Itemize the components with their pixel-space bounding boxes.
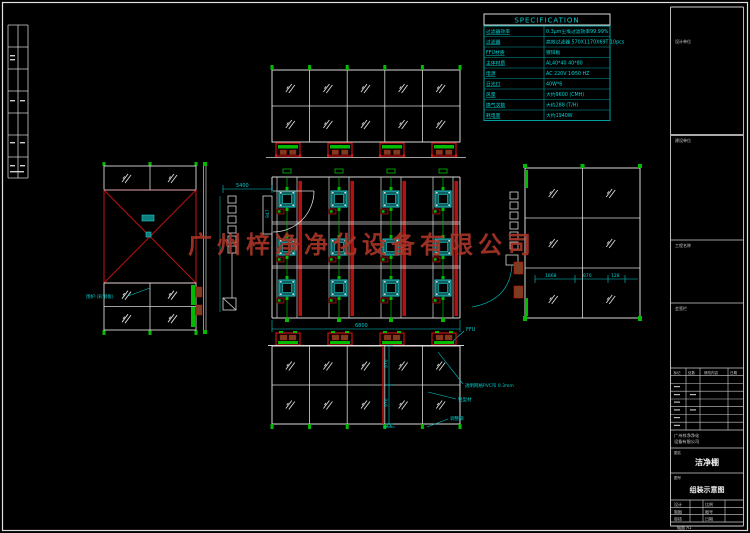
info-cell: 比例 [705, 501, 713, 507]
rev-header: 日期 [730, 370, 738, 375]
spec-row-value: 高效过滤器 570X1170X69T 10pcs [546, 39, 625, 46]
plan-dim-top: 5400 [236, 183, 249, 189]
sheet-size-note: 幅面 A1 [677, 524, 692, 530]
spec-row-value: 大约288 (T/H) [546, 102, 578, 109]
spec-row-label: 日光灯 [486, 81, 501, 88]
right-dim-3: 128 [611, 273, 620, 279]
spec-row-value: 大约1940W [546, 112, 573, 119]
height-dim-lower: 970 [384, 398, 390, 407]
spec-row-value: 0.3μm尘埃过滤效率99.99% [546, 28, 609, 35]
plan-dim-bottom: 6800 [355, 323, 368, 329]
spec-table-title: SPECIFICATION [514, 17, 579, 25]
spec-row-value: AC 220V 1Φ50 HZ [546, 71, 590, 77]
spec-row-label: 过滤器 [486, 39, 501, 46]
drawing-number-label: 图号 [674, 475, 682, 480]
spec-row-value: AL40*40 40*80 [546, 61, 583, 67]
sheet-background [0, 0, 750, 533]
company-line-1: 广州梓净净化 [674, 432, 700, 439]
drawing-name: 洁净棚 [695, 457, 719, 467]
curtain-annotation: 透明网格PVC帘 0.3mm [465, 382, 514, 389]
profile-annotation: 铝型材 [458, 396, 472, 403]
info-cell: 设计 [674, 501, 682, 507]
spec-row-value: 40W*6 [546, 82, 562, 88]
spec-row-label: 换气次数 [486, 102, 505, 109]
company-watermark: 广州梓净净化设备有限公司 [188, 231, 536, 259]
title-cell-label: 工程名称 [675, 242, 691, 248]
spec-row-label: 耗电量 [486, 112, 501, 119]
right-dim-1: 1868 [545, 273, 557, 279]
info-cell: 日期 [705, 516, 713, 522]
spec-row-label: 风量 [486, 91, 496, 98]
right-dim-2: 870 [583, 273, 592, 279]
cad-canvas: SPECIFICATION 过滤器效率 0.3μm尘埃过滤效率99.99% 过滤… [0, 0, 750, 533]
company-line-2: 设备有限公司 [674, 438, 699, 445]
spec-row-label: 过滤器效率 [486, 28, 510, 35]
title-cell-label: 设计单位 [675, 38, 691, 44]
rev-header: 标记 [674, 370, 682, 375]
spec-row-label: 电源 [486, 70, 496, 77]
info-cell: 审核 [674, 516, 682, 522]
foot-annotation: 调整脚 [450, 415, 464, 422]
info-cell: 图号 [705, 508, 713, 514]
wall-annotation: 围护:(彩钢板) [86, 293, 114, 300]
cad-drawing-sheet: SPECIFICATION 过滤器效率 0.3μm尘埃过滤效率99.99% 过滤… [0, 0, 750, 533]
ffu-leader-label: FFU [466, 327, 476, 333]
spec-row-value: 大约9600 (CMH) [546, 91, 584, 98]
plan-dim-door: 947 [265, 209, 271, 218]
drawing-name-label: 图名 [674, 450, 681, 455]
height-dim-upper: 970 [384, 359, 390, 368]
spec-row-label: FFU材质 [486, 49, 505, 56]
drawing-title: 组装示意图 [690, 485, 725, 494]
title-cell-label: 建设单位 [675, 137, 691, 143]
spec-row-value: 镀锌板 [546, 49, 561, 56]
spec-row-label: 主体材质 [486, 60, 505, 67]
rev-header: 处数 [688, 370, 696, 375]
info-cell: 制图 [674, 508, 682, 514]
title-cell-label: 会签栏 [675, 305, 687, 311]
rev-header: 修改内容 [704, 370, 718, 375]
